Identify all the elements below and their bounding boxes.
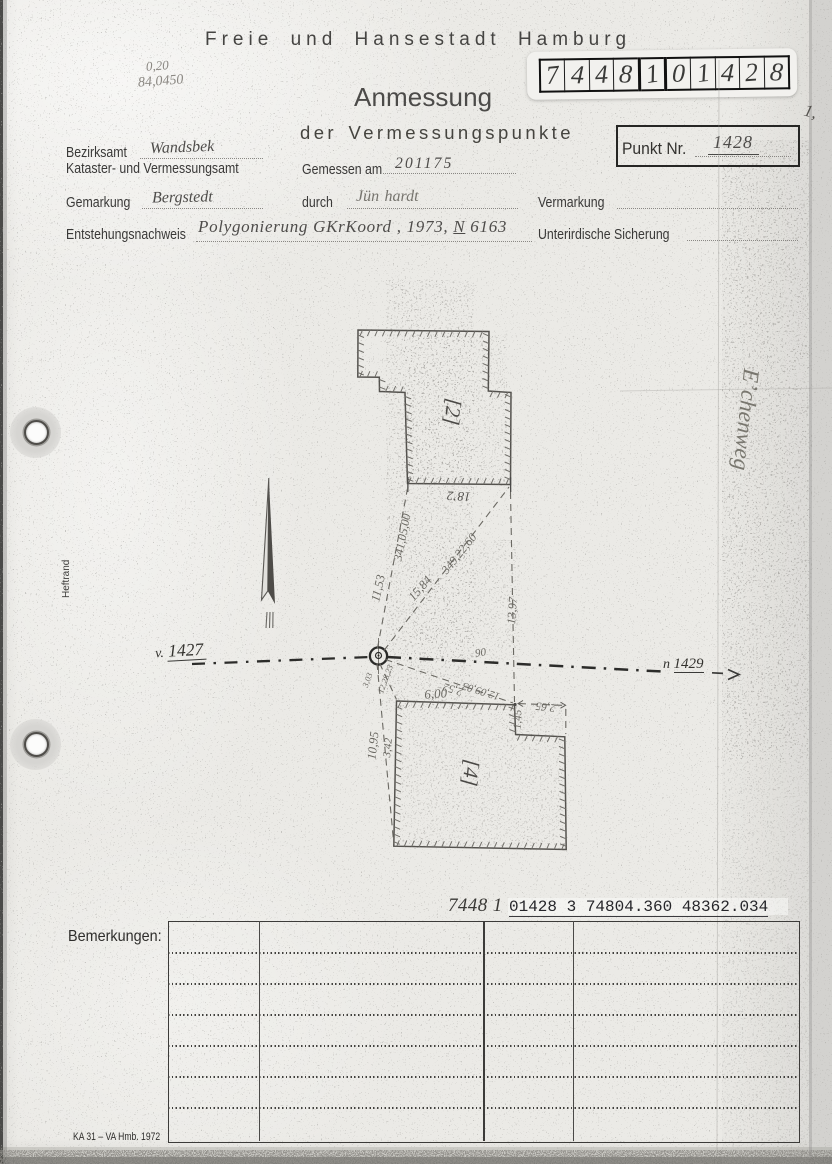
svg-text:90: 90: [474, 646, 487, 659]
svg-text:15,84: 15,84: [405, 573, 434, 603]
svg-text:11,53: 11,53: [368, 573, 388, 603]
svg-text:6,00: 6,00: [424, 685, 448, 702]
svg-text:10,95: 10,95: [365, 731, 382, 760]
svg-text:349,22,60: 349,22,60: [438, 530, 480, 577]
svg-text:3,03: 3,03: [360, 671, 375, 689]
svg-text:341,05,00: 341,05,00: [390, 512, 413, 563]
svg-text:13,97: 13,97: [504, 596, 520, 625]
svg-text:3,42: 3,42: [381, 737, 395, 759]
svg-text:12,09,03: 12,09,03: [460, 679, 501, 702]
svg-text:2,65: 2,65: [535, 699, 557, 713]
svg-text:1,45: 1,45: [512, 709, 525, 729]
svg-text:[2]: [2]: [440, 397, 467, 426]
svg-text:18’2: 18’2: [446, 488, 471, 504]
svg-text:[4]: [4]: [458, 758, 485, 787]
